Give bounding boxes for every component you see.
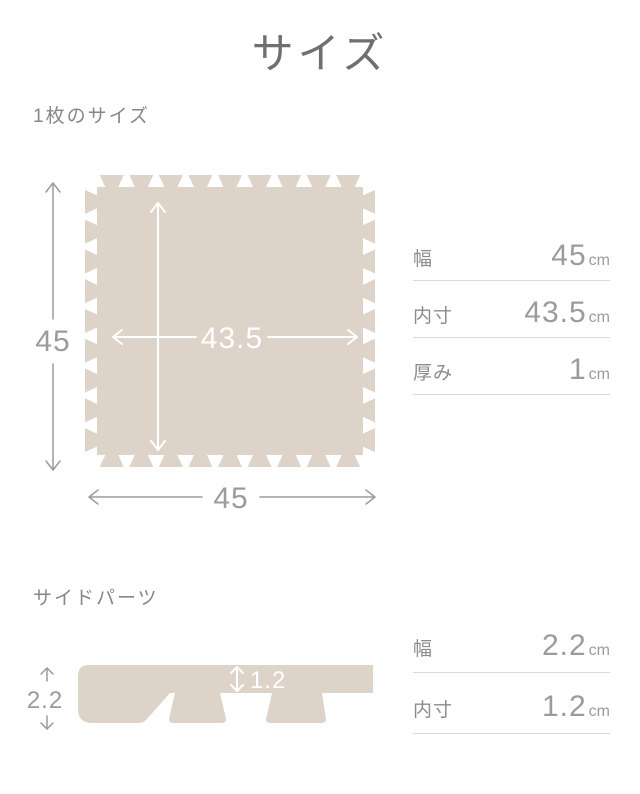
dimension-label-inner-size: 43.5 xyxy=(201,322,263,355)
spec-row-inner: 内寸 1.2 cm xyxy=(413,673,610,734)
spec-unit: cm xyxy=(589,641,610,660)
mat-diagram: 45 45 43.5 xyxy=(40,172,390,517)
dimension-outer-height: 45 xyxy=(35,183,70,470)
dimension-label-total-height: 2.2 xyxy=(27,687,63,714)
spec-label: 内寸 xyxy=(413,701,453,722)
spec-number: 43.5 xyxy=(524,298,586,328)
dimension-label-top-thickness: 1.2 xyxy=(250,667,286,694)
spec-table-single-mat: 幅 45 cm 内寸 43.5 cm 厚み 1 cm xyxy=(413,224,610,395)
spec-label: 幅 xyxy=(413,250,433,271)
spec-value: 43.5 cm xyxy=(524,298,610,328)
spec-unit: cm xyxy=(589,251,610,270)
spec-number: 2.2 xyxy=(542,631,587,661)
spec-label: 幅 xyxy=(413,640,433,661)
spec-row-width: 幅 45 cm xyxy=(413,224,610,281)
dimension-outer-width: 45 xyxy=(89,482,375,515)
spec-value: 45 cm xyxy=(551,241,610,271)
section-heading-single-mat: 1枚のサイズ xyxy=(33,101,150,128)
spec-unit: cm xyxy=(589,365,610,384)
side-part-shape xyxy=(78,665,373,723)
spec-unit: cm xyxy=(589,308,610,327)
page-title: サイズ xyxy=(0,20,640,81)
dimension-label-outer-height: 45 xyxy=(35,325,70,358)
side-part-diagram: 2.2 1.2 xyxy=(30,655,380,740)
spec-number: 1 xyxy=(569,355,587,385)
spec-row-inner: 内寸 43.5 cm xyxy=(413,281,610,338)
spec-number: 1.2 xyxy=(542,692,587,722)
spec-row-thickness: 厚み 1 cm xyxy=(413,338,610,395)
spec-value: 1 cm xyxy=(569,355,610,385)
spec-label: 厚み xyxy=(413,364,453,385)
spec-value: 1.2 cm xyxy=(542,692,610,722)
spec-label: 内寸 xyxy=(413,307,453,328)
spec-value: 2.2 cm xyxy=(542,631,610,661)
puzzle-mat-shape xyxy=(85,175,375,467)
spec-table-side-parts: 幅 2.2 cm 内寸 1.2 cm xyxy=(413,612,610,734)
dimension-total-height: 2.2 xyxy=(27,668,63,729)
spec-row-width: 幅 2.2 cm xyxy=(413,612,610,673)
dimension-label-outer-width: 45 xyxy=(213,482,248,515)
spec-unit: cm xyxy=(589,702,610,721)
section-heading-side-parts: サイドパーツ xyxy=(33,583,159,610)
size-infographic: サイズ 1枚のサイズ 45 45 xyxy=(0,0,640,794)
spec-number: 45 xyxy=(551,241,586,271)
